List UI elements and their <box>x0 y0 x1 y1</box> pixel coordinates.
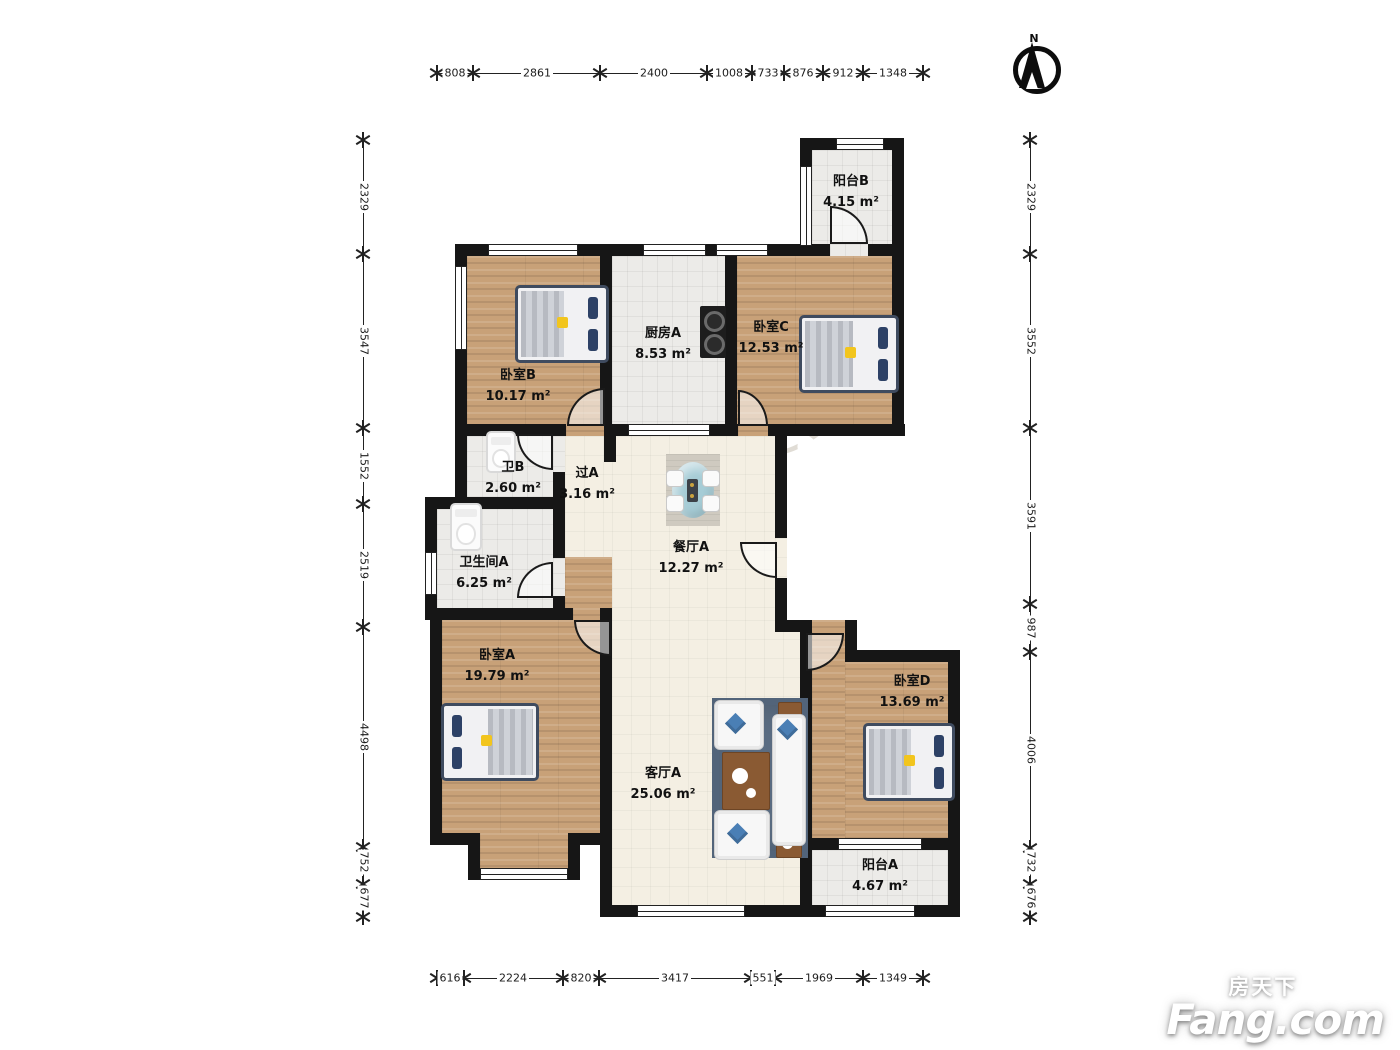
wall <box>553 497 565 558</box>
wall <box>845 650 960 662</box>
dimension-label: 876 <box>791 67 816 80</box>
wall <box>775 436 787 538</box>
chair-icon <box>702 470 720 487</box>
dimension-tick <box>855 65 871 81</box>
dimension-tick <box>355 619 371 635</box>
room-area: 4.15 m² <box>786 193 916 214</box>
window <box>716 244 768 256</box>
chair-icon <box>666 495 684 512</box>
room-label-balcony-b: 阳台B 4.15 m² <box>786 172 916 214</box>
room-name: 阳台B <box>786 172 916 193</box>
wall <box>845 620 857 662</box>
room-label-hallway: 过A 3.16 m² <box>522 464 652 506</box>
window <box>838 838 922 850</box>
dimension-label: 808 <box>443 67 468 80</box>
room-name: 卧室A <box>432 646 562 667</box>
dimension-label: 616 <box>438 972 463 985</box>
dimension-label: 4498 <box>358 721 371 753</box>
wall <box>568 845 580 868</box>
window <box>836 138 884 150</box>
dimension-label: 551 <box>751 972 776 985</box>
dimension-label: 733 <box>756 67 781 80</box>
dimension-label: 2329 <box>1025 181 1038 213</box>
room-area: 12.53 m² <box>706 339 836 360</box>
wall <box>468 845 480 868</box>
dimension-label: 3552 <box>1025 325 1038 357</box>
room-label-bedroom-c: 卧室C 12.53 m² <box>706 318 836 360</box>
wall <box>553 596 565 610</box>
dimension-tick <box>355 246 371 262</box>
window <box>643 244 706 256</box>
toilet-icon <box>450 503 482 551</box>
window <box>637 905 745 917</box>
opening-threshold <box>628 424 710 436</box>
room-area: 10.17 m² <box>453 387 583 408</box>
table-centerpiece <box>687 479 698 502</box>
dimension-label: 3547 <box>358 325 371 357</box>
room-name: 卧室B <box>453 366 583 387</box>
room-label-living: 客厅A 25.06 m² <box>598 764 728 806</box>
floorplan-canvas: 我爱我家 我爱我家 <box>0 0 1400 1050</box>
bed-icon <box>866 726 952 798</box>
room-area: 25.06 m² <box>598 785 728 806</box>
dimension-tick <box>592 65 608 81</box>
dimension-tick <box>1022 909 1038 925</box>
bed-icon <box>518 288 606 360</box>
room-label-dining: 餐厅A 12.27 m² <box>626 538 756 580</box>
wall <box>775 578 787 630</box>
dimension-tick <box>1022 596 1038 612</box>
dimension-tick <box>1022 420 1038 436</box>
room-name: 客厅A <box>598 764 728 785</box>
dimension-label: 987 <box>1025 616 1038 641</box>
dimension-label: 1349 <box>877 972 909 985</box>
window <box>488 244 578 256</box>
room-name: 过A <box>522 464 652 485</box>
dimension-label: 2329 <box>358 181 371 213</box>
wall <box>604 436 616 462</box>
dimension-tick <box>1022 132 1038 148</box>
door-gap <box>810 620 850 632</box>
dimension-tick <box>915 970 931 986</box>
chair-icon <box>666 470 684 487</box>
wall <box>430 608 442 845</box>
wall <box>768 424 905 436</box>
wall <box>425 608 573 620</box>
dimension-label: 2861 <box>521 67 553 80</box>
dimension-label: 3591 <box>1025 500 1038 532</box>
dimension-label: 752 <box>358 850 371 875</box>
dimension-label: 2224 <box>497 972 529 985</box>
plate <box>732 768 748 784</box>
dimension-label: 1969 <box>803 972 835 985</box>
dimension-label: 1008 <box>713 67 745 80</box>
room-area: 13.69 m² <box>847 693 977 714</box>
room-label-bath-a: 卫生间A 6.25 m² <box>419 553 549 595</box>
room-label-bedroom-a: 卧室A 19.79 m² <box>432 646 562 688</box>
room-area: 12.27 m² <box>626 559 756 580</box>
compass-arrow-notch <box>1026 72 1038 89</box>
dimension-tick <box>915 65 931 81</box>
room-name: 卫生间A <box>419 553 549 574</box>
dimension-tick <box>1022 246 1038 262</box>
dimension-tick <box>815 65 831 81</box>
wall <box>710 424 738 436</box>
dimension-tick <box>355 132 371 148</box>
room-label-bedroom-d: 卧室D 13.69 m² <box>847 672 977 714</box>
dimension-tick <box>355 420 371 436</box>
dimension-tick <box>355 496 371 512</box>
dimension-label: 912 <box>831 67 856 80</box>
dimension-label: 2519 <box>358 549 371 581</box>
room-area: 4.67 m² <box>815 877 945 898</box>
room-name: 卧室C <box>706 318 836 339</box>
room-area: 6.25 m² <box>419 574 549 595</box>
dimension-label: 2400 <box>638 67 670 80</box>
window <box>825 905 915 917</box>
floor-bedroom-a-bay <box>480 833 568 868</box>
dimension-label: 3417 <box>659 972 691 985</box>
room-name: 餐厅A <box>626 538 756 559</box>
dimension-label: 676 <box>1025 886 1038 911</box>
dimension-tick <box>355 909 371 925</box>
chair-icon <box>702 495 720 512</box>
window <box>480 868 568 880</box>
fang-logo-english: Fang.com <box>1166 998 1384 1042</box>
room-label-balcony-a: 阳台A 4.67 m² <box>815 856 945 898</box>
dimension-tick <box>855 970 871 986</box>
dimension-label: 677 <box>358 886 371 911</box>
room-area: 19.79 m² <box>432 667 562 688</box>
fang-logo: 房天下 Fang.com <box>1166 977 1384 1042</box>
bed-icon <box>444 706 536 778</box>
dimension-label: 1552 <box>358 450 371 482</box>
dimension-label: 1348 <box>877 67 909 80</box>
wall <box>604 424 628 436</box>
room-name: 卧室D <box>847 672 977 693</box>
room-name: 阳台A <box>815 856 945 877</box>
plate <box>746 788 756 798</box>
door-gap <box>830 244 868 256</box>
dimension-label: 732 <box>1025 850 1038 875</box>
room-label-bedroom-b: 卧室B 10.17 m² <box>453 366 583 408</box>
dimension-tick <box>1022 644 1038 660</box>
dimension-label: 820 <box>569 972 594 985</box>
room-area: 3.16 m² <box>522 485 652 506</box>
window <box>455 266 467 350</box>
compass: N <box>1006 32 1062 98</box>
dimension-label: 4006 <box>1025 734 1038 766</box>
door-gap <box>553 558 565 596</box>
